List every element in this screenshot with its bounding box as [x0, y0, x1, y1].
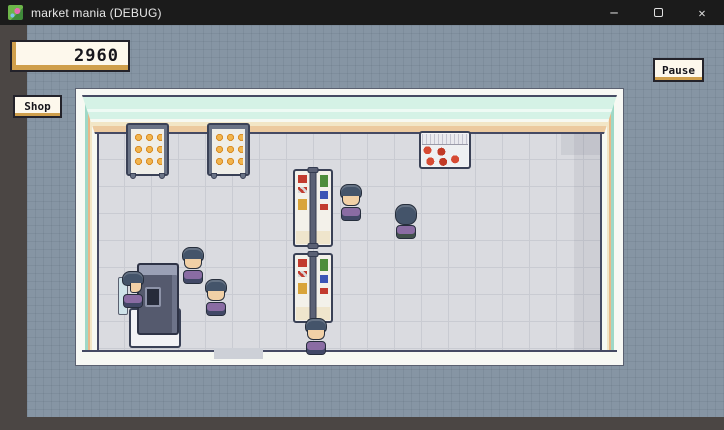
npc-body [123, 294, 143, 308]
npc-face [342, 196, 360, 206]
pause-button[interactable]: Pause [653, 58, 704, 82]
bread-items [133, 132, 162, 165]
gondola-shelf [293, 253, 333, 323]
register-screen [145, 287, 161, 307]
rack-foot [130, 173, 136, 179]
window-title: market mania (DEBUG) [31, 6, 162, 20]
floor-shadow-right [574, 134, 602, 352]
npc-customer [304, 318, 328, 356]
maximize-button[interactable] [636, 0, 680, 25]
npc-body [183, 270, 203, 284]
wall-bottom-left [82, 350, 214, 359]
store-room [82, 95, 617, 359]
rack-foot [159, 173, 165, 179]
npc-hair [395, 204, 417, 225]
pause-button-label: Pause [662, 64, 695, 77]
store-frame [75, 88, 624, 366]
npc-customer [394, 204, 418, 242]
bread-rack [207, 123, 250, 176]
npc-face [307, 330, 325, 340]
npc-face [207, 291, 225, 301]
gondola-shelf [293, 169, 333, 247]
game-window: market mania (DEBUG) ─ ✕ 2960 Shop Pause [0, 0, 724, 430]
npc-customer [204, 279, 228, 317]
rack-foot [211, 173, 217, 179]
close-icon: ✕ [698, 6, 705, 20]
close-button[interactable]: ✕ [680, 0, 724, 25]
npc-body [396, 225, 416, 239]
npc-customer [181, 247, 205, 285]
shop-button[interactable]: Shop [13, 95, 62, 118]
npc-body [306, 341, 326, 355]
bread-rack [126, 123, 169, 176]
shelf-spine [310, 167, 317, 249]
minimize-icon: ─ [610, 6, 617, 20]
money-counter: 2960 [10, 40, 130, 72]
floor-shadow-corner [561, 134, 602, 155]
shop-button-label: Shop [24, 100, 51, 113]
maximize-icon [654, 8, 663, 17]
case-grille [422, 134, 468, 145]
npc-face [130, 283, 142, 293]
wall-right [600, 95, 617, 359]
minimize-button[interactable]: ─ [592, 0, 636, 25]
npc-body [341, 207, 361, 221]
npc-cashier [121, 271, 145, 309]
title-bar: market mania (DEBUG) ─ ✕ [0, 0, 724, 25]
shelf-spine [310, 251, 317, 325]
npc-body [206, 302, 226, 316]
money-value: 2960 [74, 46, 119, 66]
npc-face [184, 259, 202, 269]
rack-foot [240, 173, 246, 179]
wall-left [82, 95, 99, 359]
window-controls: ─ ✕ [592, 0, 724, 25]
app-icon [8, 5, 23, 20]
meat-display-case [419, 131, 471, 169]
npc-customer [339, 184, 363, 222]
bread-items [214, 132, 243, 165]
entrance-doorway [214, 348, 263, 359]
meat-items [422, 145, 468, 166]
